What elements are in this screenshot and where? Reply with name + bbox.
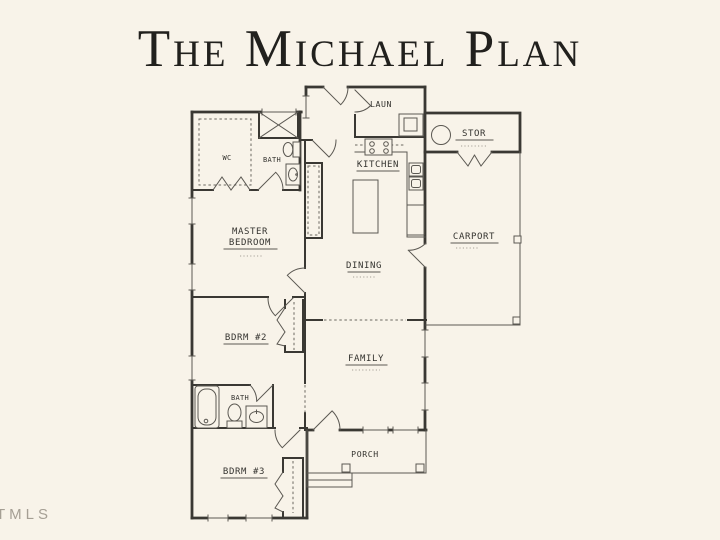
window <box>363 427 388 434</box>
room-label-dining: DINING <box>346 261 382 271</box>
window <box>189 198 196 224</box>
window <box>422 383 429 410</box>
hall-toilet-icon <box>227 404 242 428</box>
water-heater-icon <box>432 126 451 145</box>
window <box>189 264 196 290</box>
porch-post <box>416 464 424 472</box>
hall-sink-icon <box>246 406 267 428</box>
room-label-wc: WC <box>222 154 231 162</box>
room-label-hall-bath: BATH <box>231 394 249 402</box>
window <box>422 330 429 357</box>
washer-icon <box>399 114 423 136</box>
room-label-kitchen: KITCHEN <box>357 160 399 170</box>
room-label-master-bath: BATH <box>263 156 281 164</box>
refrigerator-icon <box>407 205 424 235</box>
kitchen-island <box>353 180 378 233</box>
window <box>262 109 296 116</box>
room-label-storage: STOR <box>462 129 486 139</box>
window <box>189 356 196 380</box>
room-label-family: FAMILY <box>348 354 384 364</box>
stove-icon <box>365 139 392 155</box>
room-label-laundry: LAUN <box>370 99 392 109</box>
room-label-master-line1: MASTER <box>232 227 268 237</box>
room-label-master-line2: BEDROOM <box>229 238 271 248</box>
bathtub-icon <box>195 386 219 428</box>
carport-post <box>513 317 520 324</box>
master-toilet-icon <box>283 142 300 157</box>
window <box>303 96 310 118</box>
room-label-porch: PORCH <box>351 449 379 459</box>
room-label-bedroom2: BDRM #2 <box>225 333 267 343</box>
window <box>393 427 418 434</box>
porch-post <box>342 464 350 472</box>
room-label-bedroom3: BDRM #3 <box>223 467 265 477</box>
master-sink-icon <box>286 164 300 185</box>
watermark: TMLS <box>0 506 52 523</box>
carport-post <box>514 236 521 243</box>
window <box>246 515 272 522</box>
floor-plan-page: The Michael Plan <box>0 0 720 540</box>
room-label-carport: CARPORT <box>453 232 495 242</box>
page-title: The Michael Plan <box>138 20 582 78</box>
window <box>208 515 228 522</box>
kitchen-sink-icon <box>409 163 423 190</box>
floor-plan-image: The Michael Plan <box>0 0 720 540</box>
